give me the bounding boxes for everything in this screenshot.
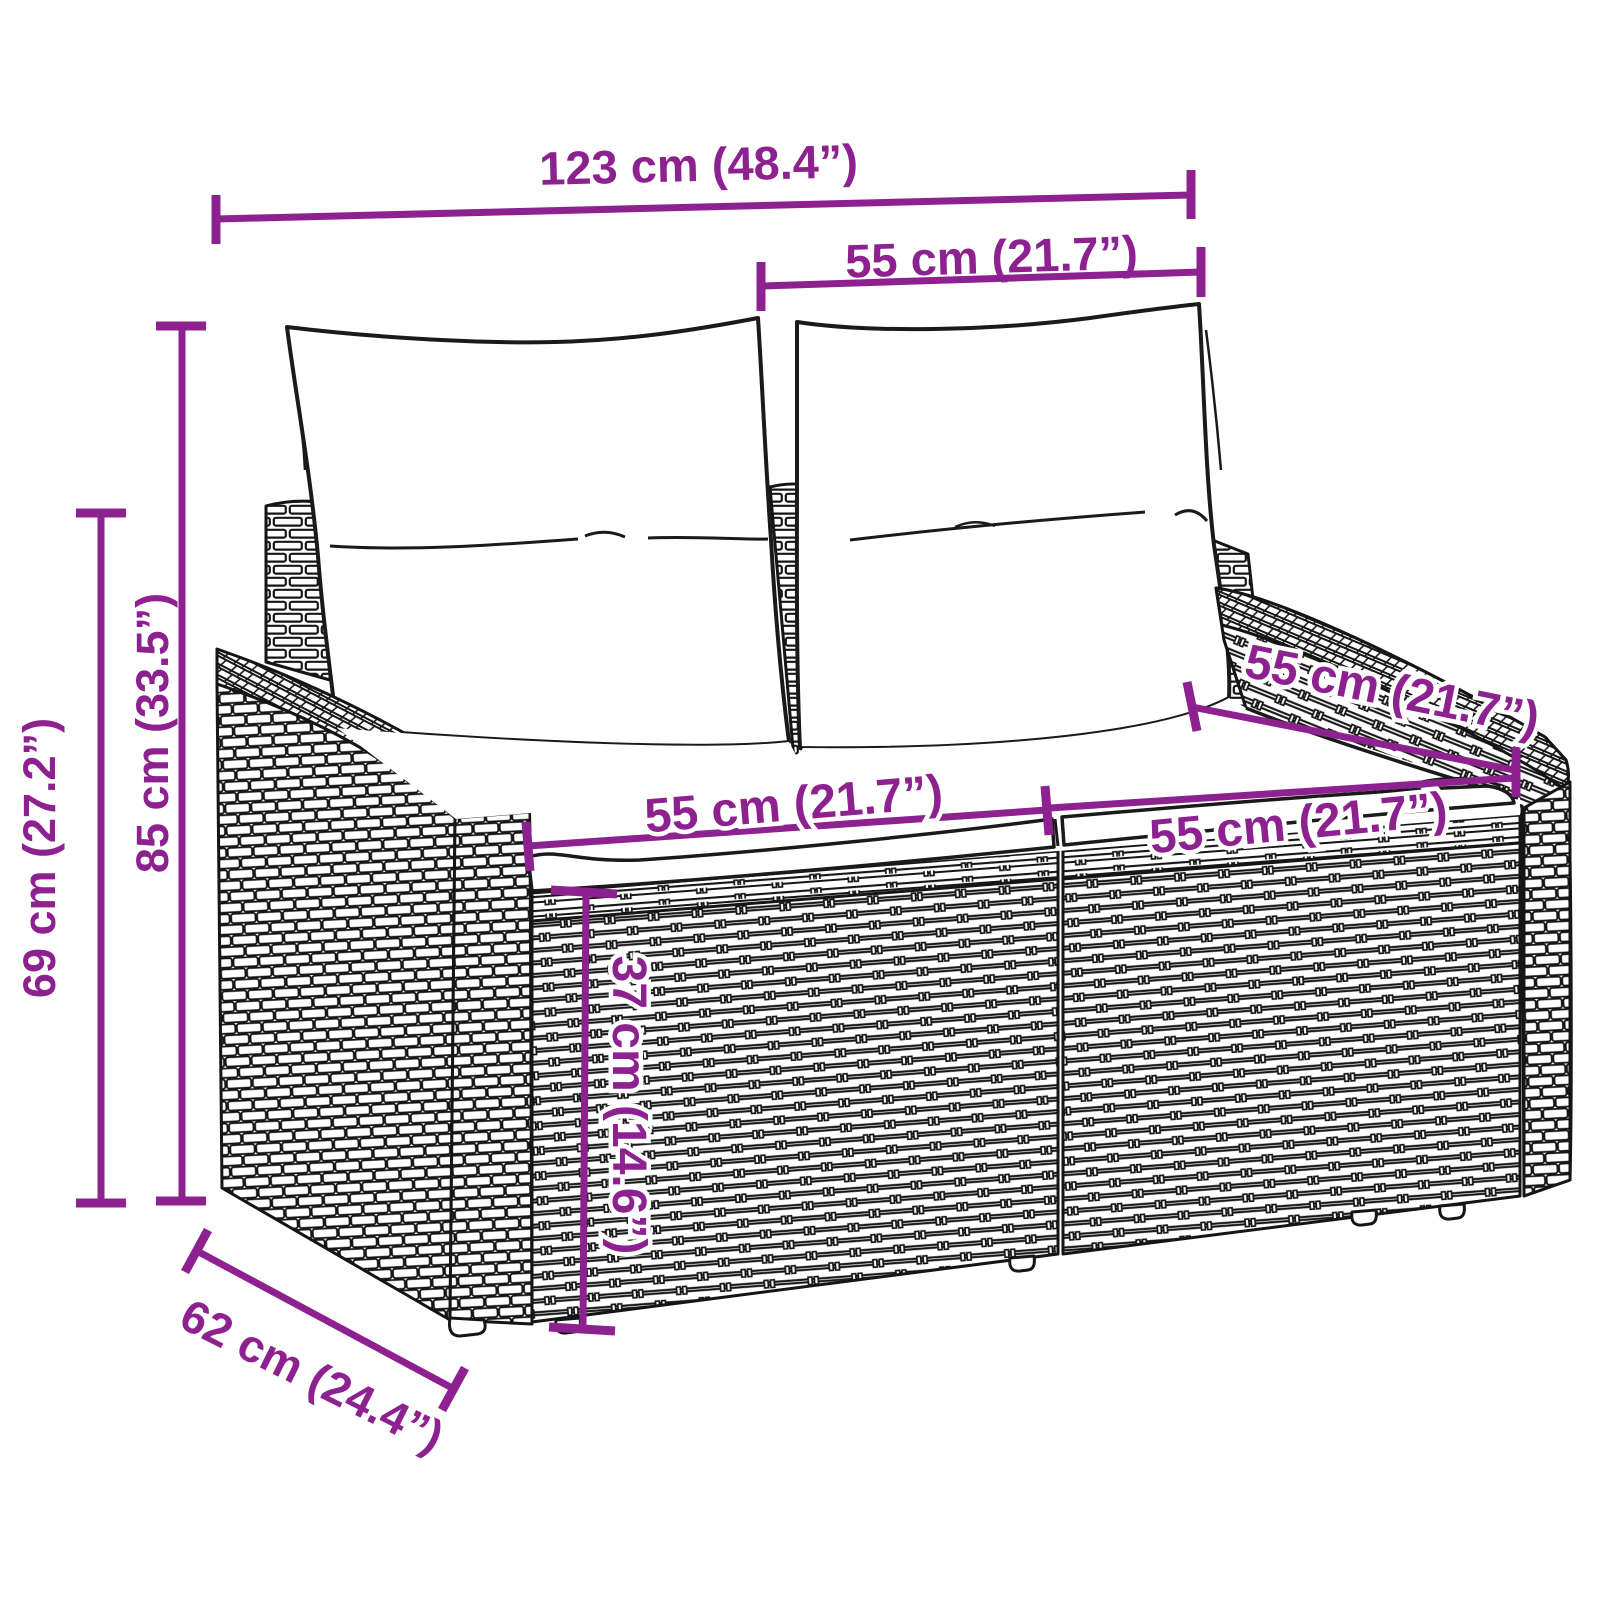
svg-text:55 cm (21.7”): 55 cm (21.7”): [844, 225, 1138, 287]
svg-text:123 cm (48.4”): 123 cm (48.4”): [539, 134, 859, 195]
svg-text:37 cm (14.6”): 37 cm (14.6”): [602, 956, 655, 1255]
svg-text:85 cm (33.5”): 85 cm (33.5”): [127, 593, 178, 873]
svg-text:69 cm (27.2”): 69 cm (27.2”): [14, 718, 65, 998]
